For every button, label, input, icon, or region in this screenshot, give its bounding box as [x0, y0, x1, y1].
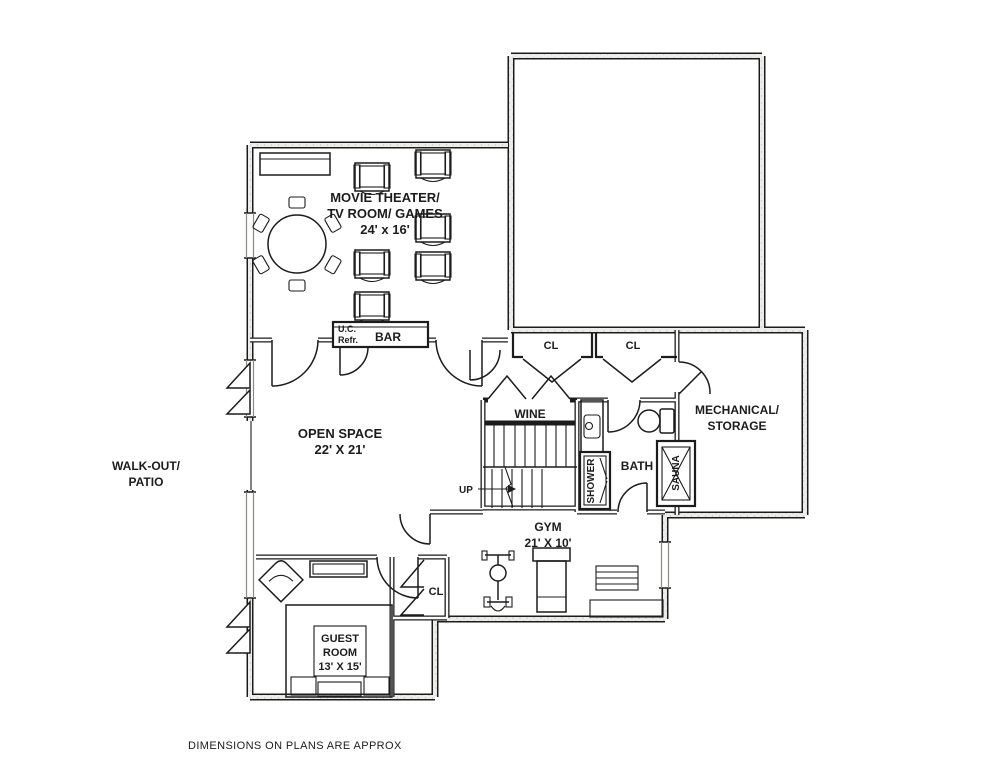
floor-plan-page: MOVIE THEATER/ TV ROOM/ GAMES 24' x 16' … — [0, 0, 1000, 768]
open-space-dims: 22' X 21' — [315, 442, 366, 457]
corner-chair — [259, 558, 303, 602]
closet-hall-1-label: CL — [544, 340, 559, 352]
bar-label: BAR — [375, 330, 401, 344]
door-mechanical — [679, 362, 710, 394]
shower-label: SHOWER — [586, 458, 597, 504]
bifold-closet-2 — [603, 359, 661, 382]
window-guest-room — [244, 492, 256, 598]
bifold-closet-1 — [523, 359, 581, 382]
door-hallway — [470, 350, 500, 380]
dresser — [310, 561, 367, 577]
closet-hall-2-label: CL — [626, 340, 641, 352]
equipment-rack — [596, 566, 638, 590]
guest-label-2: ROOM — [323, 647, 357, 659]
movie-theater-dims: 24' x 16' — [360, 222, 410, 237]
guest-label: GUEST — [321, 633, 359, 645]
sauna-label: SAUNA — [671, 455, 682, 491]
movie-theater-label-2: TV ROOM/ GAMES — [327, 206, 443, 221]
gym-dims: 21' X 10' — [524, 536, 571, 550]
toilet — [638, 409, 674, 433]
guest-dims: 13' X 15' — [318, 661, 362, 673]
movie-theater-furniture — [252, 150, 451, 324]
gym-equipment — [482, 548, 663, 617]
closet-gym-door — [401, 589, 424, 615]
closet-gym-label: CL — [429, 586, 444, 598]
pillow — [291, 677, 316, 695]
door-gym — [400, 514, 430, 544]
door-guest-room — [377, 557, 418, 598]
bath-label: BATH — [621, 459, 653, 473]
patio-door-leaf — [227, 602, 250, 627]
wine-door-right — [532, 376, 570, 399]
storage-label: STORAGE — [707, 419, 766, 433]
media-cabinet — [260, 153, 330, 175]
exercise-bench — [533, 548, 570, 612]
up-label: UP — [459, 485, 473, 496]
patio-label: PATIO — [129, 475, 164, 489]
fridge-door — [340, 347, 368, 375]
floor-plan-canvas: MOVIE THEATER/ TV ROOM/ GAMES 24' x 16' … — [0, 0, 1000, 768]
window-gym — [659, 542, 671, 588]
door-movie-west — [272, 340, 318, 386]
window-movie-theater — [244, 213, 256, 258]
exercise-mat — [590, 600, 663, 617]
guest-room-furniture — [259, 558, 392, 697]
exterior-walls — [250, 56, 805, 697]
movie-theater-label: MOVIE THEATER/ — [330, 190, 440, 205]
patio-door-leaf — [227, 629, 250, 653]
footer-disclaimer: DIMENSIONS ON PLANS ARE APPROX — [188, 740, 402, 752]
wine-label: WINE — [514, 407, 545, 421]
uc-refr-label-2: Refr. — [338, 335, 358, 345]
walk-out-label: WALK-OUT/ — [112, 459, 181, 473]
sink-vanity — [581, 400, 603, 452]
door-bath-north — [608, 400, 640, 432]
wine-door-left — [488, 376, 526, 399]
hall-closet-walls — [513, 332, 677, 358]
mechanical-label: MECHANICAL/ — [695, 403, 780, 417]
weight-machine — [482, 551, 514, 611]
uc-refr-label: U.C. — [338, 324, 356, 334]
patio-door-leaf — [227, 390, 250, 414]
open-space-label: OPEN SPACE — [298, 426, 383, 441]
gym-label: GYM — [534, 520, 561, 534]
door-bath-south — [618, 483, 647, 512]
closet-gym-door — [401, 560, 424, 587]
patio-door-leaf — [227, 363, 250, 388]
pillow — [364, 677, 389, 695]
stairs — [478, 425, 577, 508]
